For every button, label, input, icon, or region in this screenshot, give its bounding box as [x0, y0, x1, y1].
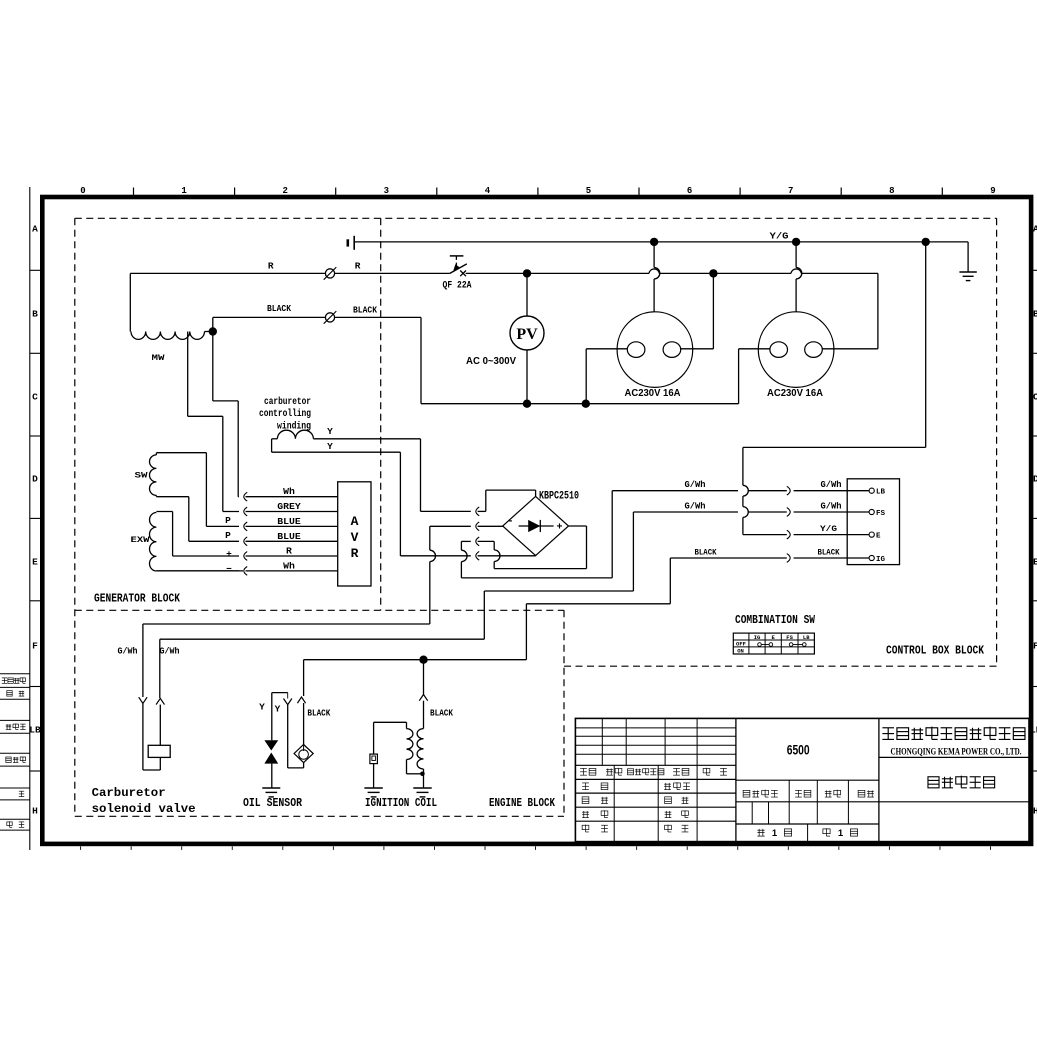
svg-text:AC230V 16A: AC230V 16A	[625, 387, 681, 399]
svg-text:−: −	[226, 563, 232, 574]
svg-text:F: F	[32, 641, 38, 652]
svg-text:C: C	[1033, 392, 1037, 403]
svg-text:A: A	[32, 224, 38, 235]
svg-text:AC 0~300V: AC 0~300V	[466, 355, 516, 367]
svg-text:F: F	[1033, 641, 1037, 652]
svg-text:R: R	[268, 260, 274, 271]
svg-text:G/Wh: G/Wh	[821, 502, 842, 512]
svg-text:LB: LB	[29, 725, 41, 736]
svg-text:QF 22A: QF 22A	[443, 281, 472, 292]
svg-text:Y: Y	[259, 702, 265, 713]
svg-text:D: D	[1033, 474, 1037, 485]
svg-text:BLUE: BLUE	[277, 516, 301, 527]
svg-text:GREY: GREY	[277, 501, 301, 512]
svg-text:CHONGQING KEMA POWER CO., LTD.: CHONGQING KEMA POWER CO., LTD.	[891, 747, 1022, 757]
svg-text:Wh: Wh	[283, 486, 295, 497]
svg-text:FS: FS	[876, 510, 886, 518]
svg-text:KBPC2510: KBPC2510	[539, 490, 579, 502]
svg-text:carburetor: carburetor	[264, 396, 311, 408]
svg-text:G/Wh: G/Wh	[118, 647, 138, 657]
svg-text:A: A	[351, 514, 359, 529]
svg-text:PV: PV	[516, 326, 538, 343]
svg-text:R: R	[286, 546, 292, 557]
svg-text:E: E	[1033, 557, 1037, 568]
svg-text:V: V	[351, 530, 359, 545]
svg-text:+: +	[556, 523, 562, 534]
svg-text:Y: Y	[327, 441, 333, 452]
svg-text:E: E	[876, 533, 881, 541]
svg-text:IG: IG	[876, 556, 886, 564]
svg-text:LB: LB	[876, 489, 886, 497]
svg-text:BLUE: BLUE	[277, 531, 301, 542]
svg-text:G/Wh: G/Wh	[160, 647, 180, 657]
svg-text:B: B	[1033, 309, 1037, 320]
svg-text:COMBINATION SW: COMBINATION SW	[735, 613, 816, 627]
svg-text:H: H	[1033, 806, 1037, 817]
svg-text:EXW: EXW	[131, 535, 151, 545]
svg-text:G/Wh: G/Wh	[685, 480, 706, 490]
svg-text:BLACK: BLACK	[267, 303, 291, 314]
svg-text:BLACK: BLACK	[307, 708, 330, 719]
svg-text:G/Wh: G/Wh	[821, 480, 842, 490]
svg-text:-: -	[507, 517, 513, 528]
svg-text:FS: FS	[786, 634, 793, 641]
svg-text:controlling: controlling	[259, 408, 311, 420]
svg-text:H: H	[32, 806, 38, 817]
svg-text:P: P	[225, 515, 231, 526]
svg-text:Carburetor: Carburetor	[92, 786, 166, 800]
svg-text:6500: 6500	[787, 743, 810, 758]
svg-text:IGNITION COIL: IGNITION COIL	[365, 797, 437, 810]
svg-text:Wh: Wh	[283, 560, 295, 571]
svg-text:B: B	[32, 309, 38, 320]
svg-text:Y/G: Y/G	[770, 232, 789, 242]
svg-text:C: C	[32, 392, 38, 403]
svg-text:E: E	[32, 557, 38, 568]
svg-text:SW: SW	[135, 471, 149, 481]
svg-text:Y: Y	[327, 426, 333, 437]
svg-text:1: 1	[838, 828, 844, 839]
svg-text:Y: Y	[275, 704, 281, 715]
svg-text:1: 1	[772, 828, 778, 839]
svg-text:BLACK: BLACK	[695, 548, 718, 558]
svg-text:solenoid valve: solenoid valve	[92, 802, 196, 816]
svg-text:OIL SENSOR: OIL SENSOR	[243, 797, 302, 810]
svg-text:MW: MW	[152, 353, 166, 363]
svg-text:ENGINE BLOCK: ENGINE BLOCK	[489, 797, 555, 810]
svg-text:R: R	[355, 261, 361, 272]
svg-text:BLACK: BLACK	[818, 548, 841, 558]
svg-text:CONTROL BOX BLOCK: CONTROL BOX BLOCK	[886, 645, 984, 658]
svg-text:LB: LB	[803, 634, 810, 641]
svg-text:+: +	[226, 548, 232, 559]
svg-text:ON: ON	[737, 648, 744, 655]
svg-text:G/Wh: G/Wh	[685, 502, 706, 512]
svg-text:IG: IG	[754, 634, 761, 641]
svg-text:GENERATOR BLOCK: GENERATOR BLOCK	[94, 593, 180, 606]
svg-text:R: R	[351, 546, 359, 561]
svg-text:P: P	[225, 530, 231, 541]
svg-text:AC230V 16A: AC230V 16A	[767, 387, 823, 399]
svg-text:BLACK: BLACK	[430, 708, 453, 719]
svg-text:A: A	[1033, 224, 1037, 235]
svg-text:D: D	[32, 474, 38, 485]
svg-text:Y/G: Y/G	[820, 524, 837, 534]
svg-text:BLACK: BLACK	[353, 305, 377, 316]
